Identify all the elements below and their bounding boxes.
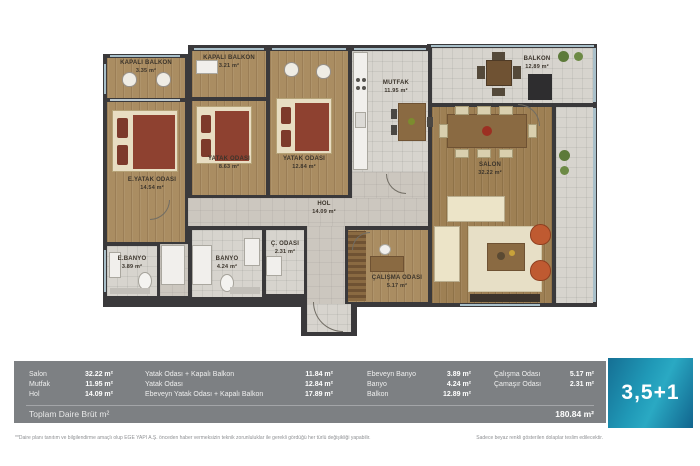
room-label-yatak: YATAK ODASI 12.84 m²: [259, 156, 349, 171]
room-label-banyo: BANYO 4.24 m²: [182, 256, 272, 271]
balcony-chair: [492, 88, 505, 96]
dining-chair: [455, 106, 469, 115]
summary-column-1: Salon32.22 m² Mutfak11.95 m² Hol14.09 m²: [29, 370, 113, 400]
apartment-type-badge: 3,5+1: [608, 358, 693, 428]
sofa: [447, 196, 505, 222]
room-name: KAPALI BALKON: [120, 60, 172, 66]
bath-mat: [230, 287, 260, 294]
room-area: 4.24 m²: [182, 264, 272, 271]
footnote-left: **Daire planı tanıtım ve bilgilendirme a…: [15, 435, 371, 441]
row-value: 4.24 m²: [447, 380, 471, 390]
plant-icon: [559, 150, 570, 161]
room-area: 3.21 m²: [184, 63, 274, 70]
table-row: Balkon12.89 m²: [367, 390, 471, 400]
table-row: Çalışma Odası5.17 m²: [494, 370, 594, 380]
room-name: KAPALI BALKON: [203, 55, 255, 61]
room-area: 12.84 m²: [259, 164, 349, 171]
floor-plan: KAPALI BALKON 3.35 m² KAPALI BALKON 3.21…: [0, 0, 700, 350]
floor-corridor: [307, 226, 345, 304]
summary-column-4: Çalışma Odası5.17 m² Çamaşır Odası2.31 m…: [494, 370, 594, 390]
summary-table: Salon32.22 m² Mutfak11.95 m² Hol14.09 m²…: [14, 361, 606, 423]
room-area: 32.22 m²: [445, 170, 535, 177]
room-label-ebeveyn-banyo: E.BANYO 3.89 m²: [87, 256, 177, 271]
window-salon-bottom: [460, 304, 540, 306]
dining-centerpiece: [482, 126, 492, 136]
room-name: BALKON: [524, 56, 551, 62]
table-row: Hol14.09 m²: [29, 390, 113, 400]
dining-chair: [499, 106, 513, 115]
room-name: SALON: [479, 162, 501, 168]
row-value: 11.95 m²: [85, 380, 113, 390]
window-kb1-top: [110, 55, 180, 57]
room-label-hol: HOL 14.09 m²: [279, 201, 369, 216]
room-area: 14.09 m²: [279, 209, 369, 216]
room-area: 11.95 m²: [351, 88, 441, 95]
decor-icon: [509, 250, 515, 256]
dining-chair: [528, 124, 537, 138]
row-label: Mutfak: [29, 380, 50, 390]
room-name: HOL: [317, 201, 330, 207]
row-value: 11.84 m²: [305, 370, 333, 380]
room-label-salon: SALON 32.22 m²: [445, 162, 535, 177]
lounge-chair-icon: [316, 64, 331, 79]
bath-mat: [110, 288, 150, 294]
table-row: Banyo4.24 m²: [367, 380, 471, 390]
row-label: Çalışma Odası: [494, 370, 540, 380]
dining-chair: [477, 106, 491, 115]
table-row: Çamaşır Odası2.31 m²: [494, 380, 594, 390]
room-area: 12.89 m²: [492, 64, 582, 71]
window-kb2-top: [194, 48, 264, 50]
row-value: 2.31 m²: [570, 380, 594, 390]
room-name: ÇALIŞMA ODASI: [372, 275, 422, 281]
room-label-ebeveyn-yatak: E.YATAK ODASI 14.54 m²: [107, 177, 197, 192]
row-label: Balkon: [367, 390, 388, 400]
summary-column-2: Yatak Odası + Kapalı Balkon11.84 m² Yata…: [145, 370, 333, 400]
table-row: Ebeveyn Banyo3.89 m²: [367, 370, 471, 380]
room-area: 3.35 m²: [101, 68, 191, 75]
room-area: 3.89 m²: [87, 264, 177, 271]
room-name: YATAK ODASI: [208, 156, 250, 162]
coffee-table: [487, 243, 525, 271]
kitchen-counter: [353, 52, 368, 170]
column: [528, 74, 552, 100]
table-row: Salon32.22 m²: [29, 370, 113, 380]
room-name: Ç. ODASI: [271, 241, 299, 247]
row-label: Ebeveyn Yatak Odası + Kapalı Balkon: [145, 390, 263, 400]
armchair: [530, 260, 551, 281]
room-label-kapali-balkon-1: KAPALI BALKON 3.35 m²: [101, 60, 191, 75]
table-row: Mutfak11.95 m²: [29, 380, 113, 390]
room-label-camasir: Ç. ODASI 2.31 m²: [240, 241, 330, 256]
room-name: E.YATAK ODASI: [128, 177, 176, 183]
floor-plan-page: { "plan": { "rooms": [ {"name":"kapali-b…: [0, 0, 700, 466]
row-label: Ebeveyn Banyo: [367, 370, 416, 380]
plant-icon: [560, 166, 569, 175]
sofa: [434, 226, 460, 282]
window-kb1-inner: [110, 99, 180, 101]
row-value: 12.89 m²: [443, 390, 471, 400]
desk-chair: [379, 244, 391, 255]
lounge-chair-icon: [284, 62, 299, 77]
row-label: Salon: [29, 370, 47, 380]
row-value: 32.22 m²: [85, 370, 113, 380]
window-yatak-top: [272, 48, 346, 50]
kitchen-chair: [391, 125, 397, 135]
table-row: Yatak Odası + Kapalı Balkon11.84 m²: [145, 370, 333, 380]
row-value: 12.84 m²: [305, 380, 333, 390]
window-balkon-top: [431, 45, 594, 47]
row-label: Çamaşır Odası: [494, 380, 541, 390]
room-name: MUTFAK: [383, 80, 409, 86]
window-balkon-right: [593, 48, 596, 102]
bed-yatak: [276, 98, 332, 154]
room-name: E.BANYO: [118, 256, 147, 262]
dining-chair: [455, 149, 469, 158]
footnote-right: Sadece beyaz renkli gösterilen dolaplar …: [476, 435, 603, 441]
total-label: Toplam Daire Brüt m²: [29, 409, 109, 419]
desk: [370, 256, 404, 272]
kitchen-chair: [391, 109, 397, 119]
row-label: Banyo: [367, 380, 387, 390]
dining-chair: [439, 124, 448, 138]
kitchen-chair: [427, 117, 433, 127]
row-label: Yatak Odası: [145, 380, 183, 390]
decor-icon: [497, 252, 505, 260]
armchair: [530, 224, 551, 245]
row-label: Yatak Odası + Kapalı Balkon: [145, 370, 234, 380]
balcony-chair: [477, 66, 485, 79]
window-strip-right: [593, 108, 596, 302]
window-mutfak-top: [354, 48, 426, 50]
room-name: BANYO: [216, 256, 239, 262]
dining-chair: [499, 149, 513, 158]
wall-notch: [103, 45, 188, 54]
floor-balkon-strip: [556, 107, 593, 303]
divider: [26, 405, 594, 406]
kitchen-sink: [355, 112, 366, 128]
row-label: Hol: [29, 390, 40, 400]
bed-ebeveyn: [112, 110, 178, 172]
table-row: Ebeveyn Yatak Odası + Kapalı Balkon17.89…: [145, 390, 333, 400]
summary-column-3: Ebeveyn Banyo3.89 m² Banyo4.24 m² Balkon…: [367, 370, 471, 400]
row-value: 14.09 m²: [85, 390, 113, 400]
tv-bench: [470, 294, 540, 302]
row-value: 17.89 m²: [305, 390, 333, 400]
room-area: 2.31 m²: [240, 249, 330, 256]
apartment-type-label: 3,5+1: [621, 381, 679, 405]
table-row: Yatak Odası12.84 m²: [145, 380, 333, 390]
table-centerpiece: [408, 118, 415, 125]
room-name: YATAK ODASI: [283, 156, 325, 162]
row-value: 3.89 m²: [447, 370, 471, 380]
room-area: 14.54 m²: [107, 185, 197, 192]
room-label-mutfak: MUTFAK 11.95 m²: [351, 80, 441, 95]
dining-chair: [477, 149, 491, 158]
room-label-calisma: ÇALIŞMA ODASI 5.17 m²: [352, 275, 442, 290]
room-label-balkon: BALKON 12.89 m²: [492, 56, 582, 71]
room-label-kapali-balkon-2: KAPALI BALKON 3.21 m²: [184, 55, 274, 70]
total-value: 180.84 m²: [555, 409, 594, 419]
room-area: 5.17 m²: [352, 283, 442, 290]
row-value: 5.17 m²: [570, 370, 594, 380]
